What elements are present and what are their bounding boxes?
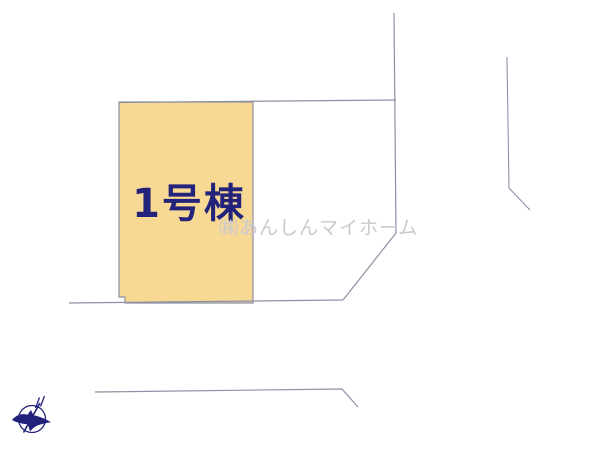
neighbor-boundary-line bbox=[507, 57, 530, 210]
top-boundary-line bbox=[119, 100, 396, 103]
compass-north-bird-icon bbox=[12, 396, 51, 433]
compass-bird-shape bbox=[12, 410, 51, 432]
compass-north-tick2-shape bbox=[41, 396, 45, 407]
watermark-text: ㈱あんしんマイホーム bbox=[219, 217, 418, 239]
right-boundary-line bbox=[343, 13, 396, 300]
site-plan-canvas: 1号棟 ㈱あんしんマイホーム bbox=[0, 0, 600, 449]
road-edge-line bbox=[95, 389, 358, 407]
site-plan-drawing: 1号棟 ㈱あんしんマイホーム bbox=[0, 0, 600, 449]
